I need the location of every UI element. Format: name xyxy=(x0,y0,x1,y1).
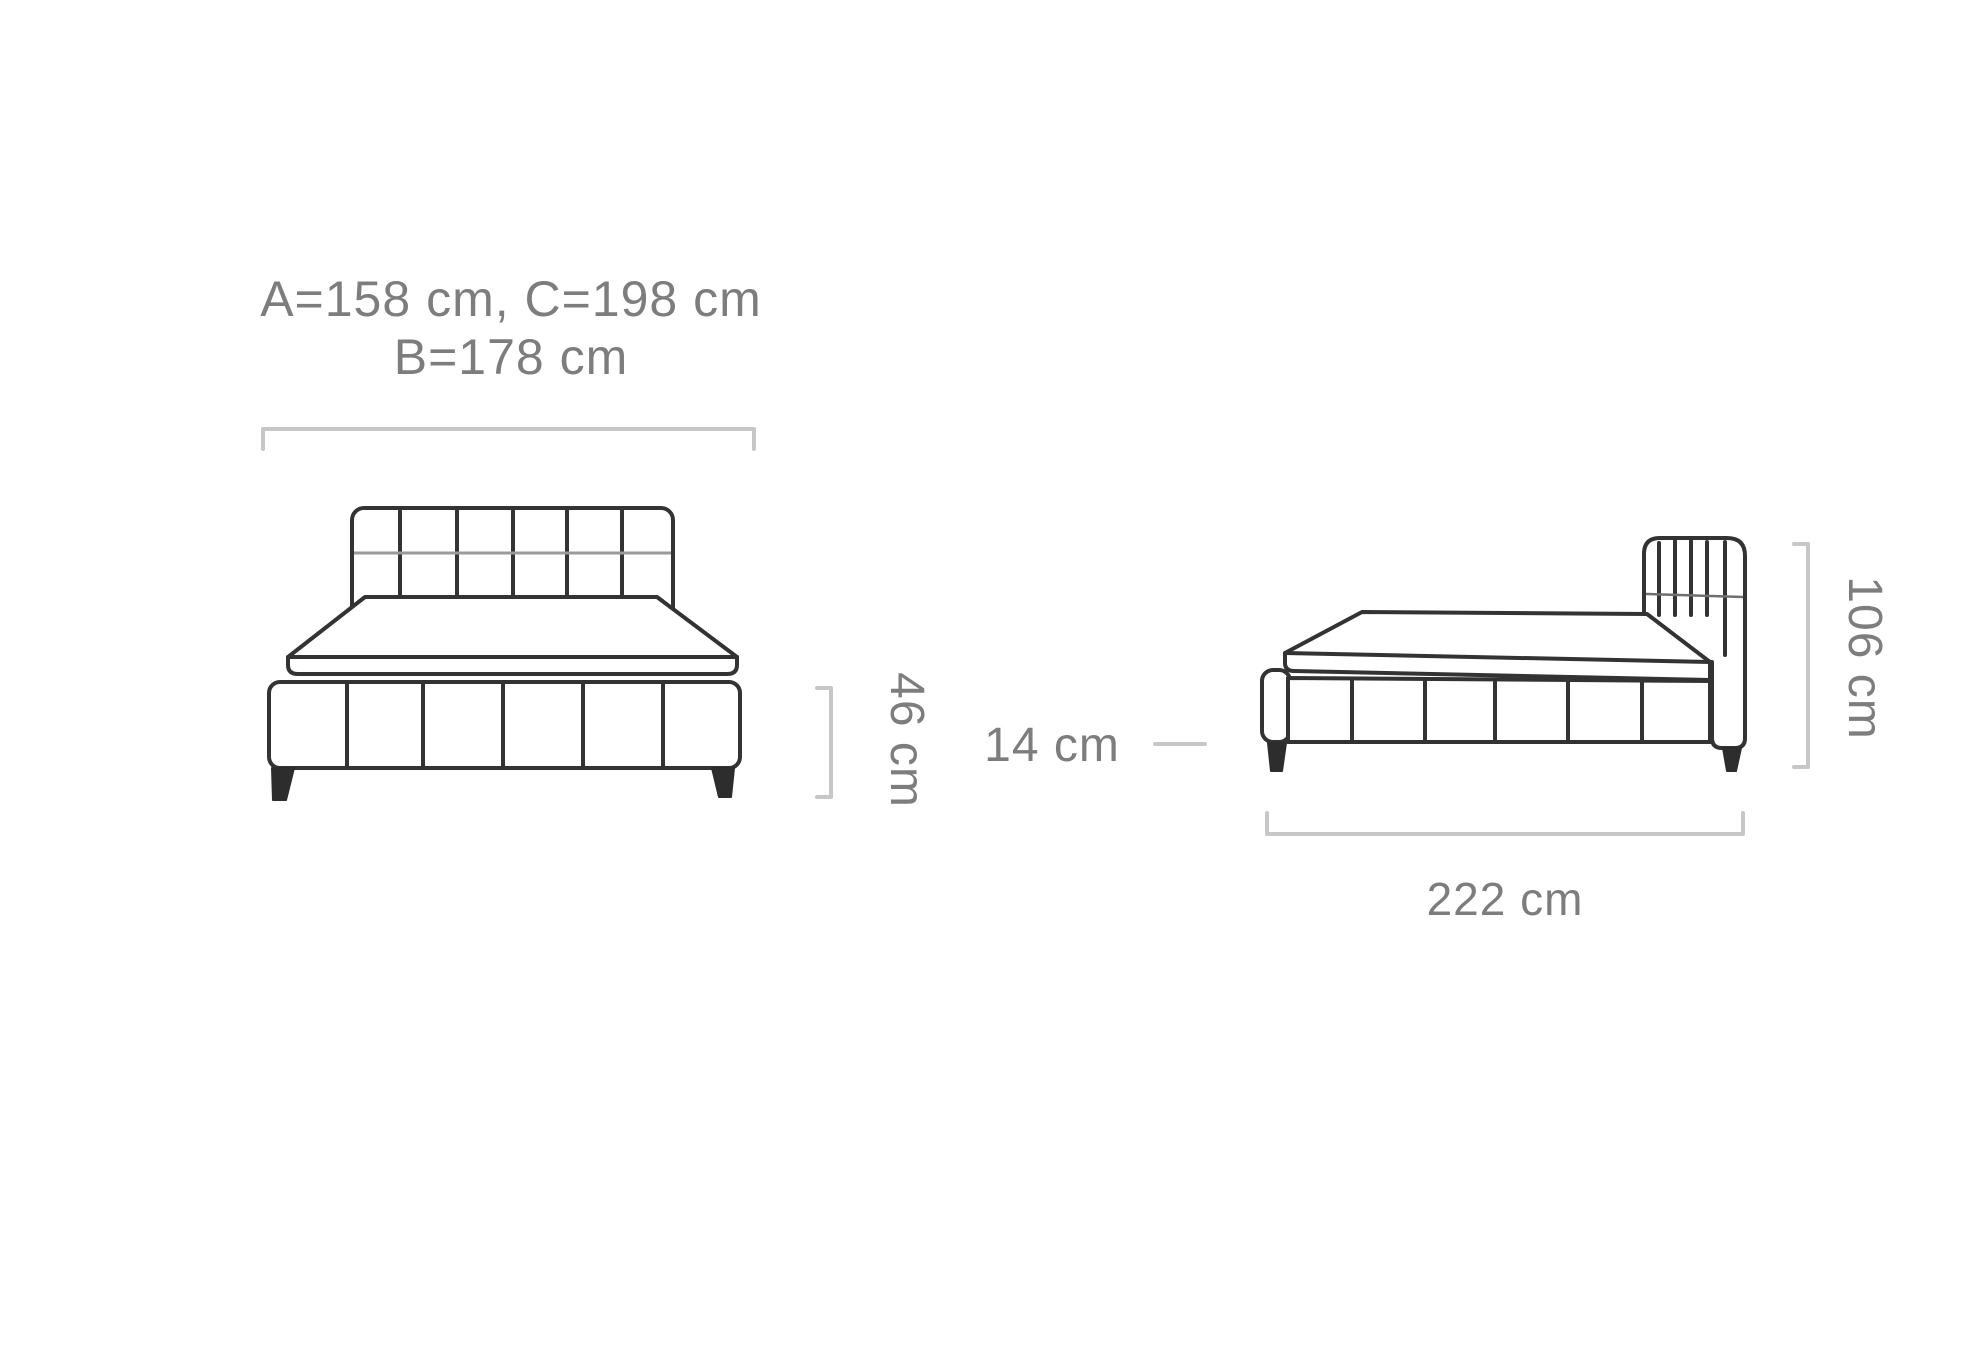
side-leg-right xyxy=(1723,748,1741,771)
bed-dimensions-diagram: A=158 cm, C=198 cm B=178 cm 46 cm 14 cm … xyxy=(0,0,1980,1345)
front-leg-right xyxy=(712,768,734,797)
bed-side-view-drawing xyxy=(1262,538,1745,771)
leg-height-label: 14 cm xyxy=(984,719,1120,772)
side-footboard-cap xyxy=(1262,670,1290,742)
front-base-height-label: 46 cm xyxy=(880,672,933,808)
front-width-label-line1: A=158 cm, C=198 cm xyxy=(260,271,762,327)
front-base-height-dimension-line xyxy=(817,688,831,797)
diagram-svg: A=158 cm, C=198 cm B=178 cm 46 cm 14 cm … xyxy=(0,0,1980,1345)
side-length-dimension-line xyxy=(1267,813,1743,834)
front-leg-left xyxy=(272,768,294,800)
side-height-label: 106 cm xyxy=(1838,576,1891,739)
side-length-label: 222 cm xyxy=(1427,873,1584,925)
side-mattress xyxy=(1285,612,1710,680)
side-height-dimension-line xyxy=(1794,544,1808,767)
front-width-dimension-line xyxy=(263,429,754,449)
bed-front-view-drawing xyxy=(269,508,740,800)
side-leg-left xyxy=(1268,743,1286,771)
front-mattress xyxy=(288,597,737,674)
front-width-label-line2: B=178 cm xyxy=(394,329,629,385)
